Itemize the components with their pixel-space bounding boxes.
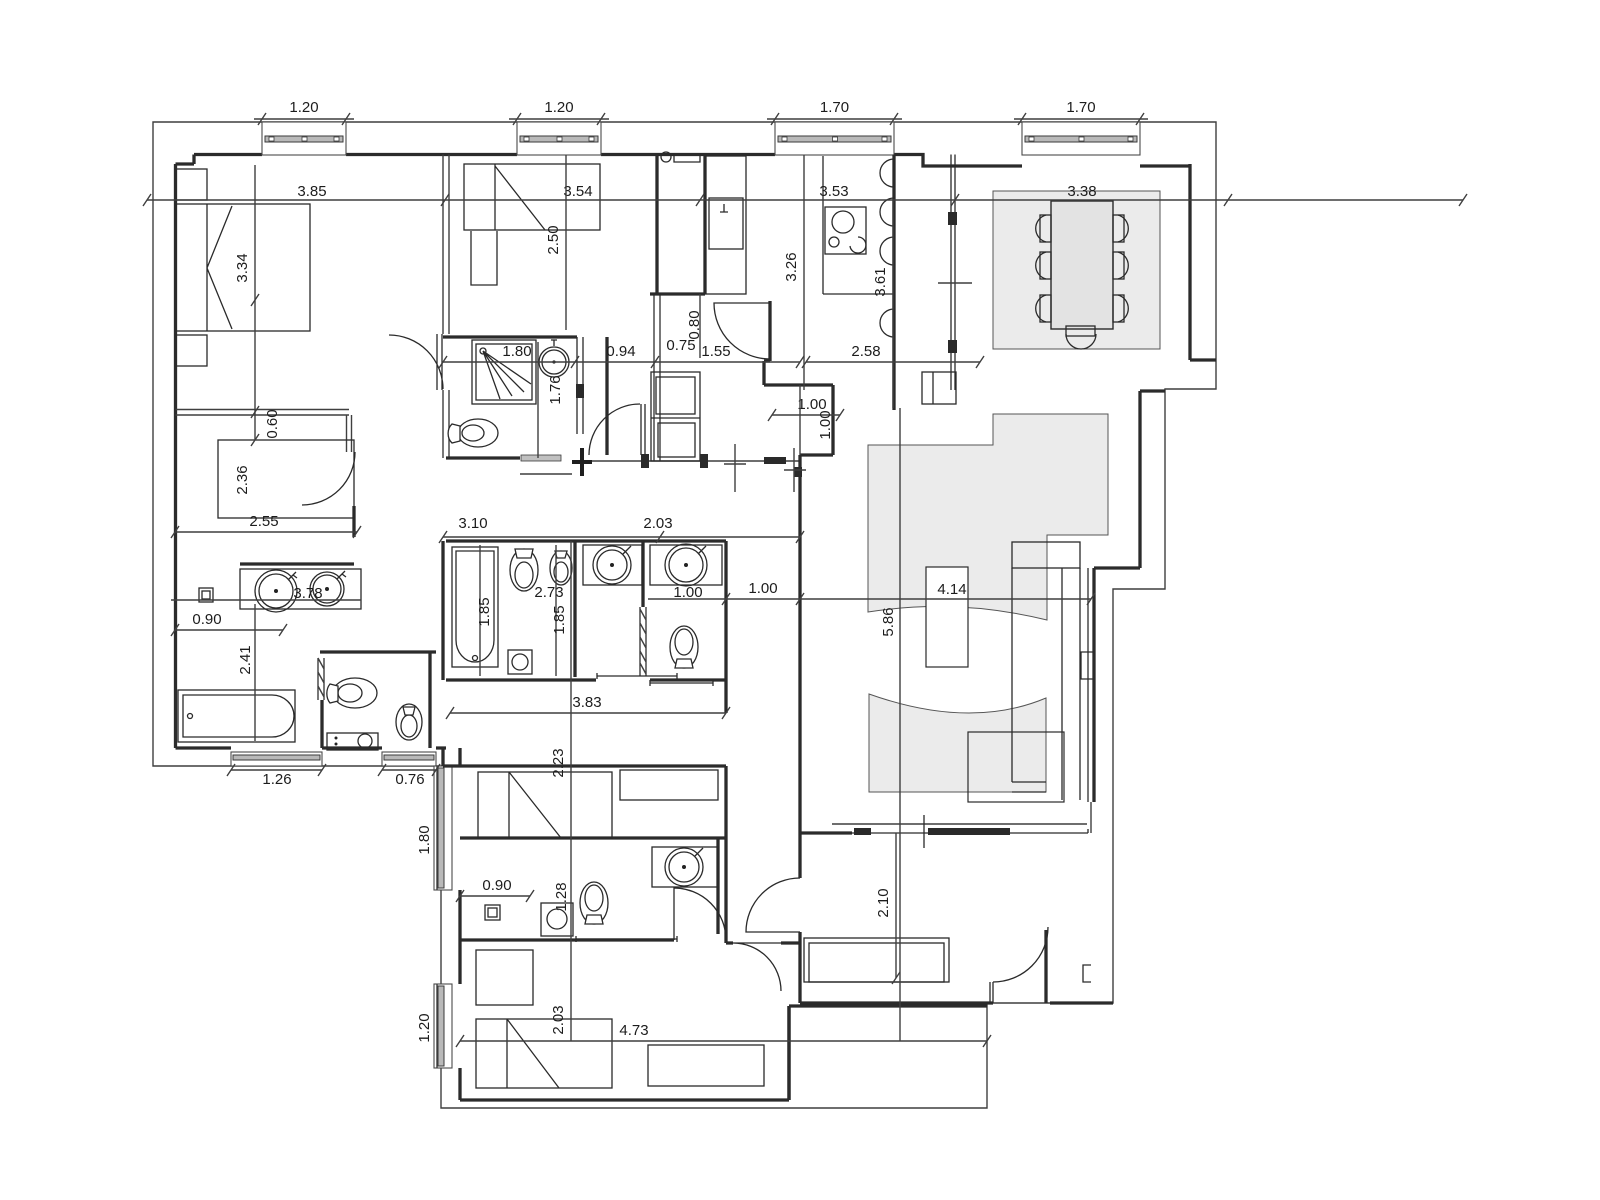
svg-text:1.85: 1.85 (551, 605, 568, 634)
svg-text:1.00: 1.00 (817, 410, 834, 439)
svg-text:2.23: 2.23 (550, 748, 567, 777)
svg-text:1.00: 1.00 (748, 580, 777, 597)
svg-text:3.26: 3.26 (783, 252, 800, 281)
svg-text:0.60: 0.60 (264, 409, 281, 438)
svg-text:2.03: 2.03 (643, 515, 672, 532)
svg-text:4.73: 4.73 (619, 1022, 648, 1039)
svg-text:2.73: 2.73 (534, 584, 563, 601)
svg-text:3.34: 3.34 (234, 253, 251, 282)
svg-text:1.76: 1.76 (547, 375, 564, 404)
svg-text:2.41: 2.41 (237, 645, 254, 674)
svg-text:1.80: 1.80 (502, 343, 531, 360)
svg-text:1.70: 1.70 (820, 99, 849, 116)
svg-text:3.83: 3.83 (572, 694, 601, 711)
svg-text:3.85: 3.85 (297, 183, 326, 200)
svg-text:0.90: 0.90 (192, 611, 221, 628)
svg-text:5.86: 5.86 (880, 607, 897, 636)
svg-text:1.28: 1.28 (553, 882, 570, 911)
svg-text:1.70: 1.70 (1066, 99, 1095, 116)
svg-text:1.85: 1.85 (476, 597, 493, 626)
svg-text:1.80: 1.80 (416, 825, 433, 854)
svg-text:2.58: 2.58 (851, 343, 880, 360)
svg-text:1.55: 1.55 (701, 343, 730, 360)
svg-text:0.80: 0.80 (686, 310, 703, 339)
svg-text:2.10: 2.10 (875, 888, 892, 917)
svg-text:3.10: 3.10 (458, 515, 487, 532)
svg-text:2.50: 2.50 (545, 225, 562, 254)
svg-text:3.53: 3.53 (819, 183, 848, 200)
svg-text:1.20: 1.20 (289, 99, 318, 116)
svg-text:4.14: 4.14 (937, 581, 966, 598)
svg-text:1.20: 1.20 (544, 99, 573, 116)
svg-text:3.78: 3.78 (293, 585, 322, 602)
svg-text:3.61: 3.61 (872, 267, 889, 296)
svg-text:0.94: 0.94 (606, 343, 635, 360)
svg-text:1.20: 1.20 (416, 1013, 433, 1042)
svg-text:1.26: 1.26 (262, 771, 291, 788)
svg-text:0.90: 0.90 (482, 877, 511, 894)
svg-text:0.76: 0.76 (395, 771, 424, 788)
svg-text:3.54: 3.54 (563, 183, 592, 200)
svg-text:2.36: 2.36 (234, 465, 251, 494)
svg-text:2.03: 2.03 (550, 1005, 567, 1034)
svg-text:2.55: 2.55 (249, 513, 278, 530)
svg-text:3.38: 3.38 (1067, 183, 1096, 200)
